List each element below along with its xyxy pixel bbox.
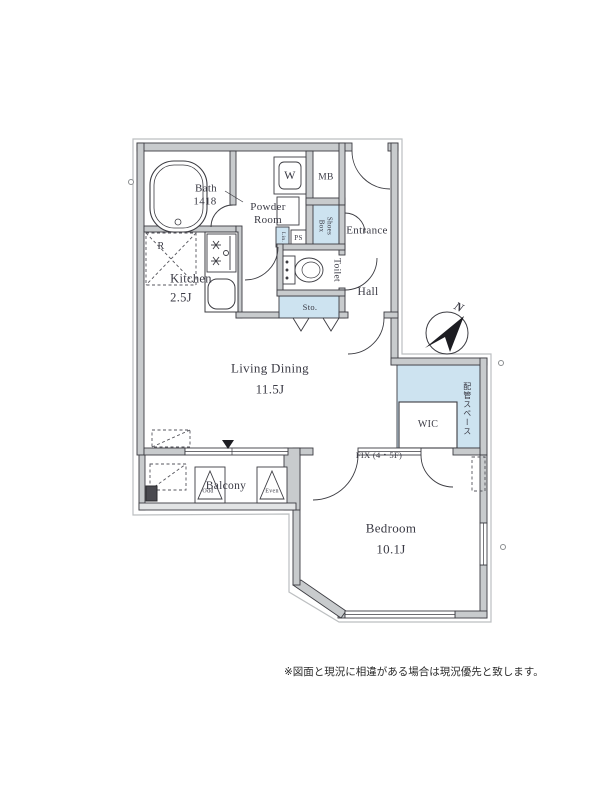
entrance-door-arc [352, 151, 390, 189]
living-dining-size: 11.5J [256, 381, 285, 396]
bath-size: 1418 [193, 196, 216, 209]
compass-north-icon [425, 312, 468, 354]
meter-box-label: MB [318, 172, 333, 183]
hall-door-arc [348, 318, 384, 354]
washer-label: W [284, 168, 296, 182]
fix-window-label: FIX (4・5F) [356, 450, 402, 460]
storage-hook-icons [293, 318, 339, 331]
window-mullions [185, 448, 484, 615]
linen-label: Lin. [279, 232, 285, 242]
bedroom-size: 10.1J [376, 541, 405, 556]
wic-door-arc [421, 455, 453, 487]
balcony-railing [139, 503, 296, 510]
hall-label: Hall [358, 286, 379, 300]
pipe-shaft-label: PS [294, 234, 302, 242]
balcony-faucet-icon [146, 486, 157, 501]
toilet-label: Toilet [330, 258, 341, 282]
floor-plan-page: Bath 1418 Powder Room Kitchen 2.5J Livin… [0, 0, 600, 800]
kitchen-size: 2.5J [170, 291, 192, 306]
living-dining-label: Living Dining [231, 360, 309, 375]
disclaimer-note: ※図面と現況に相違がある場合は現況優先と致します。 [284, 666, 544, 678]
storage-label: Sto. [303, 302, 318, 312]
powder-door-arc [245, 247, 278, 280]
wic-label: WIC [418, 419, 438, 431]
pipe-space-label: 配管スペース [462, 382, 471, 436]
bedroom-door-arc [313, 455, 358, 500]
refrigerator-label: R [158, 241, 165, 253]
powder-room-label: Powder Room [250, 201, 285, 227]
floor-plan-drawing [0, 0, 600, 800]
kitchen-label: Kitchen [170, 272, 212, 287]
toilet-door-arc [345, 258, 377, 290]
shoes-box-label: Shoes Box [317, 217, 334, 235]
toilet-icon [283, 256, 323, 284]
bedroom-label: Bedroom [366, 520, 416, 535]
entrance-label: Entrance [346, 225, 388, 238]
escape-hatch-even-icon [257, 467, 287, 503]
hatch-odd-label: Odd [202, 488, 213, 495]
bath-label: Bath [195, 183, 217, 196]
stove-icon [207, 234, 236, 272]
hatch-even-label: Even [265, 488, 279, 495]
